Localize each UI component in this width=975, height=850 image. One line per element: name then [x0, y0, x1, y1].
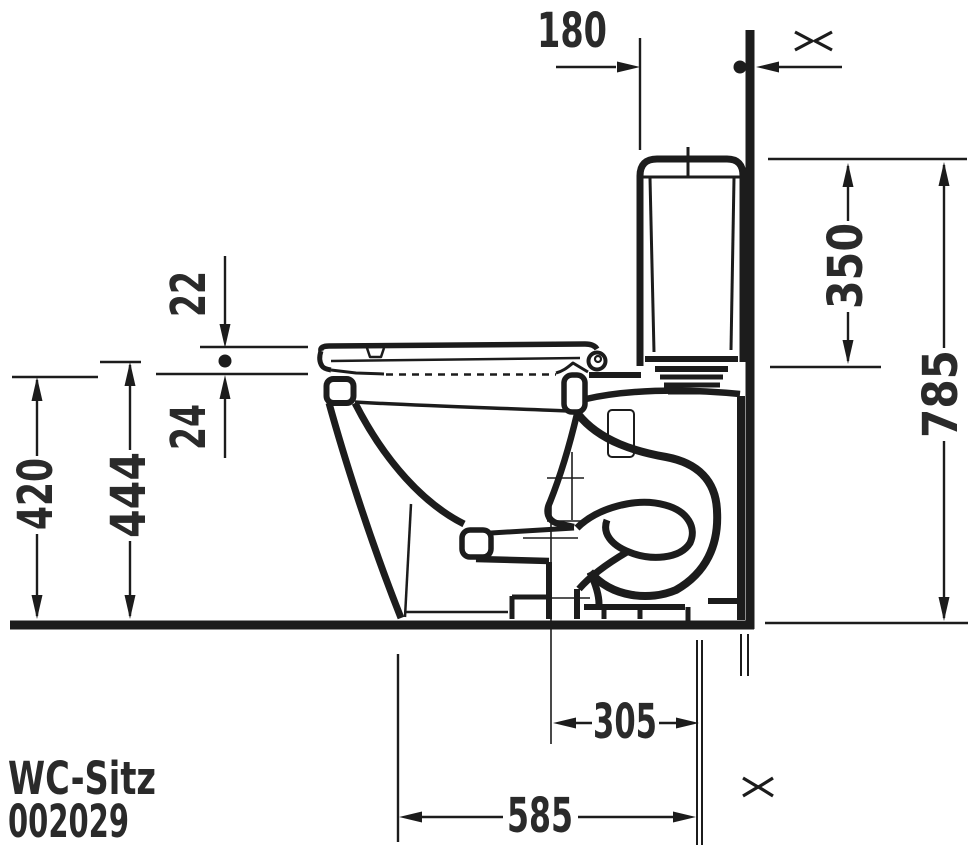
dim-305-label: 305 — [593, 694, 657, 750]
dim-350-label: 350 — [818, 223, 874, 309]
dim-180-label: 180 — [537, 3, 607, 59]
dimension-rim-height: 420 — [8, 377, 98, 619]
dimension-wall-to-cistern: 180 — [537, 3, 842, 150]
dimension-overall-height: 785 — [913, 162, 969, 621]
front-rim-section — [327, 379, 354, 403]
dim-785-label: 785 — [913, 350, 969, 438]
toilet-section-drawing: 180 350 785 22 24 — [0, 0, 975, 850]
dim-22-label: 22 — [161, 271, 217, 317]
dim-585-label: 585 — [507, 788, 573, 844]
wall-break-icon-top — [795, 32, 832, 50]
wall-reference-dot — [734, 61, 747, 74]
dimension-hinge-height: 444 — [100, 362, 157, 619]
pedestal-front-edge — [329, 403, 401, 618]
sump-section — [462, 530, 491, 557]
dimension-seat-thickness: 22 — [161, 256, 308, 368]
product-code: 002029 — [8, 795, 129, 848]
cistern — [640, 147, 743, 392]
rear-rim-section — [564, 375, 585, 412]
floor-line — [10, 623, 968, 625]
trapway-section — [577, 414, 717, 604]
wall-break-icon-bottom — [743, 778, 773, 796]
base-and-outlet — [404, 562, 740, 622]
dim-420-label: 420 — [8, 458, 64, 530]
seat-and-lid — [320, 344, 606, 375]
dim-24-label: 24 — [161, 404, 217, 450]
technical-drawing-page: 180 350 785 22 24 — [0, 0, 975, 850]
product-label: WC-Sitz 002029 — [8, 752, 156, 848]
dim-444-label: 444 — [101, 452, 157, 538]
hinge-level-dot — [219, 355, 232, 368]
bowl-section — [327, 375, 742, 620]
lid-bumper-notch — [367, 348, 384, 357]
dimension-seat-to-rim: 24 — [156, 374, 308, 458]
dimension-cistern-height: 350 — [768, 159, 967, 367]
